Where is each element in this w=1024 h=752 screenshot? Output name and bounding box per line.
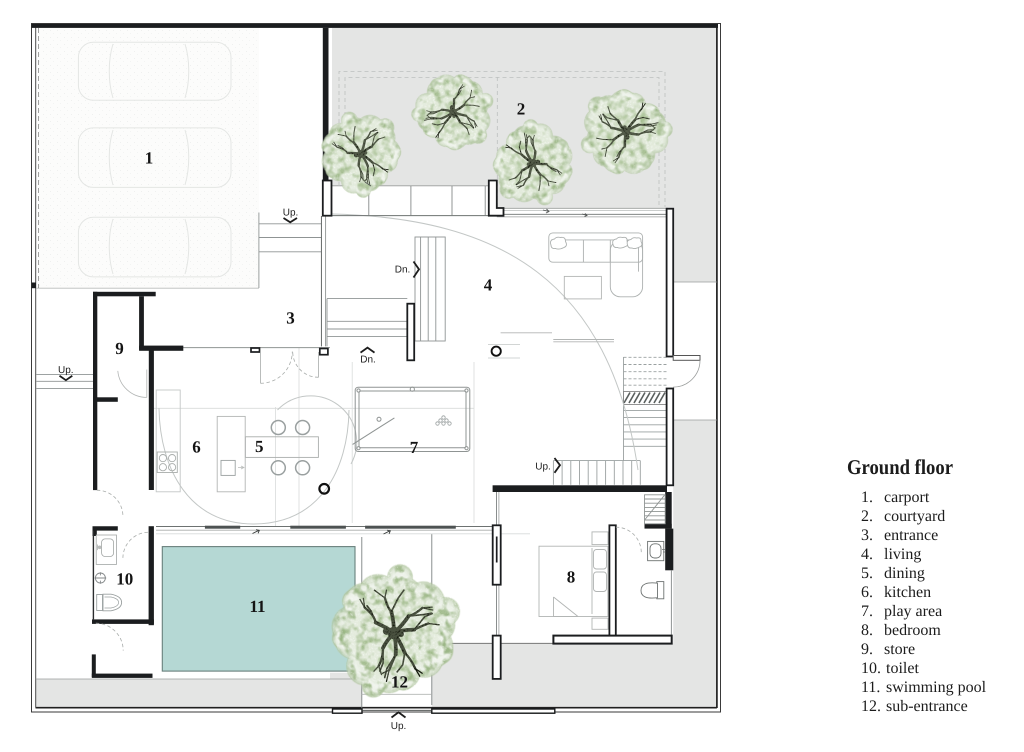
svg-text:kitchen: kitchen: [884, 584, 931, 601]
svg-text:10.: 10.: [861, 660, 881, 677]
svg-text:5: 5: [255, 437, 264, 456]
svg-text:Up.: Up.: [58, 365, 74, 376]
svg-text:play area: play area: [884, 603, 942, 620]
svg-text:4.: 4.: [861, 546, 873, 563]
svg-text:7: 7: [410, 438, 419, 457]
svg-text:Up.: Up.: [283, 208, 299, 219]
svg-text:12: 12: [391, 673, 408, 692]
svg-text:9: 9: [115, 339, 124, 358]
svg-text:8.: 8.: [861, 622, 873, 639]
svg-text:10: 10: [116, 569, 133, 588]
svg-text:12.: 12.: [861, 698, 881, 715]
svg-text:6.: 6.: [861, 584, 873, 601]
svg-text:1: 1: [145, 149, 154, 168]
svg-text:toilet: toilet: [886, 660, 919, 677]
svg-text:8: 8: [567, 568, 576, 587]
svg-text:2.: 2.: [861, 508, 873, 525]
svg-text:dining: dining: [884, 565, 925, 582]
svg-text:11.: 11.: [861, 679, 880, 696]
svg-text:Up.: Up.: [535, 462, 551, 473]
svg-text:5.: 5.: [861, 565, 873, 582]
svg-text:swimming pool: swimming pool: [886, 679, 987, 696]
svg-text:3.: 3.: [861, 527, 873, 544]
svg-text:11: 11: [249, 597, 265, 616]
svg-text:courtyard: courtyard: [884, 508, 945, 525]
svg-text:entrance: entrance: [884, 527, 938, 544]
svg-text:2: 2: [517, 100, 526, 119]
svg-text:Up.: Up.: [391, 721, 407, 732]
svg-text:6: 6: [192, 438, 201, 457]
svg-text:living: living: [884, 546, 921, 563]
svg-text:Dn.: Dn.: [395, 265, 411, 276]
svg-text:9.: 9.: [861, 641, 873, 658]
svg-text:carport: carport: [884, 489, 930, 506]
svg-text:4: 4: [484, 276, 493, 295]
svg-text:3: 3: [286, 309, 295, 328]
svg-text:store: store: [884, 641, 915, 658]
svg-text:sub-entrance: sub-entrance: [886, 698, 968, 715]
svg-text:Ground floor: Ground floor: [847, 455, 953, 479]
svg-text:1.: 1.: [861, 489, 873, 506]
svg-text:7.: 7.: [861, 603, 873, 620]
svg-text:bedroom: bedroom: [884, 622, 941, 639]
svg-text:Dn.: Dn.: [360, 355, 376, 366]
